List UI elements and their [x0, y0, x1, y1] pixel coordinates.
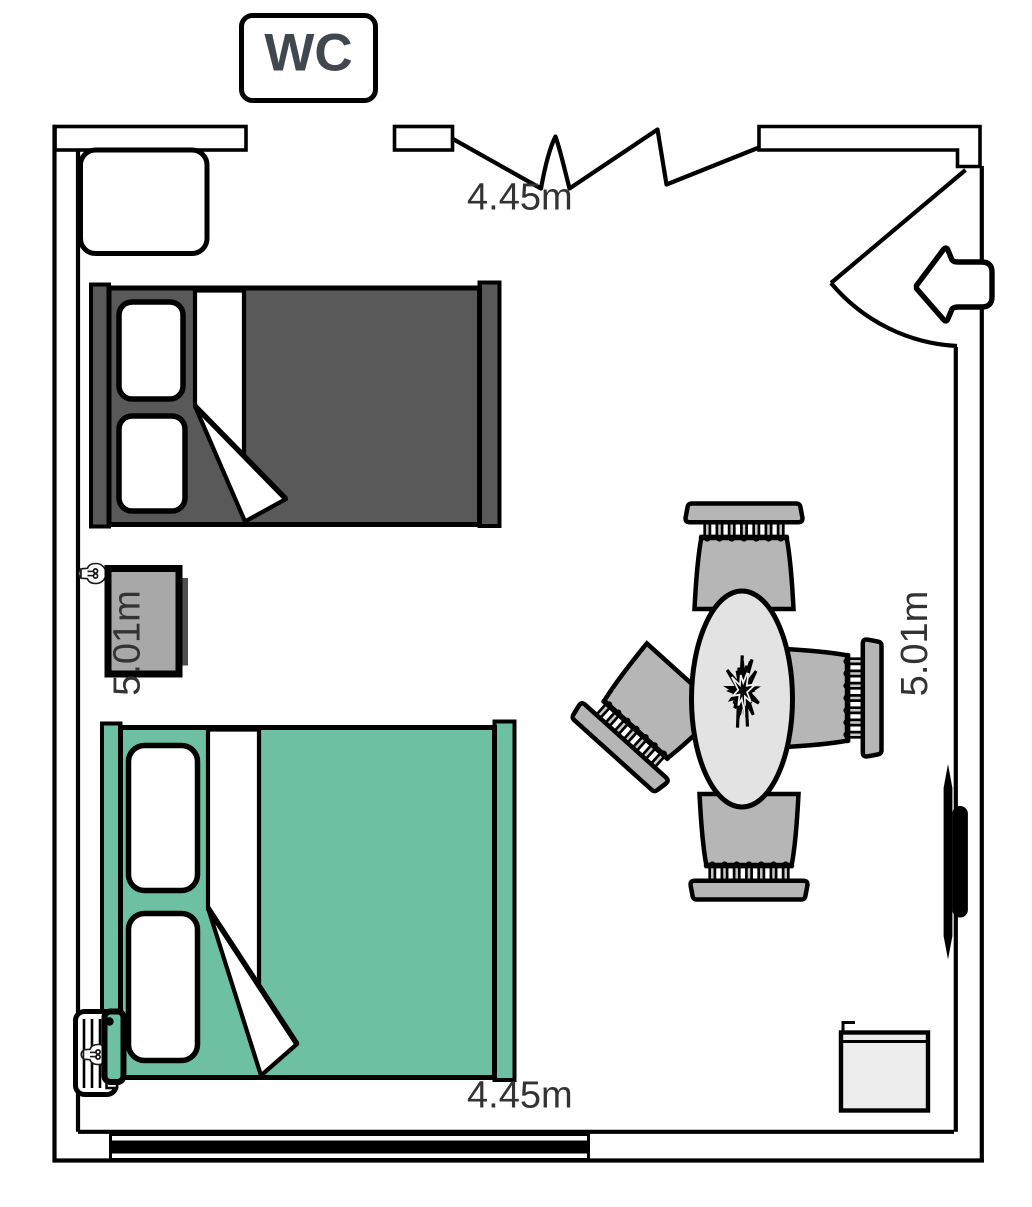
svg-text:5.01m: 5.01m — [107, 590, 149, 696]
svg-text:WC: WC — [264, 24, 352, 83]
svg-text:4.45m: 4.45m — [467, 177, 573, 219]
svg-text:5.01m: 5.01m — [894, 591, 936, 697]
svg-text:4.45m: 4.45m — [467, 1075, 573, 1117]
